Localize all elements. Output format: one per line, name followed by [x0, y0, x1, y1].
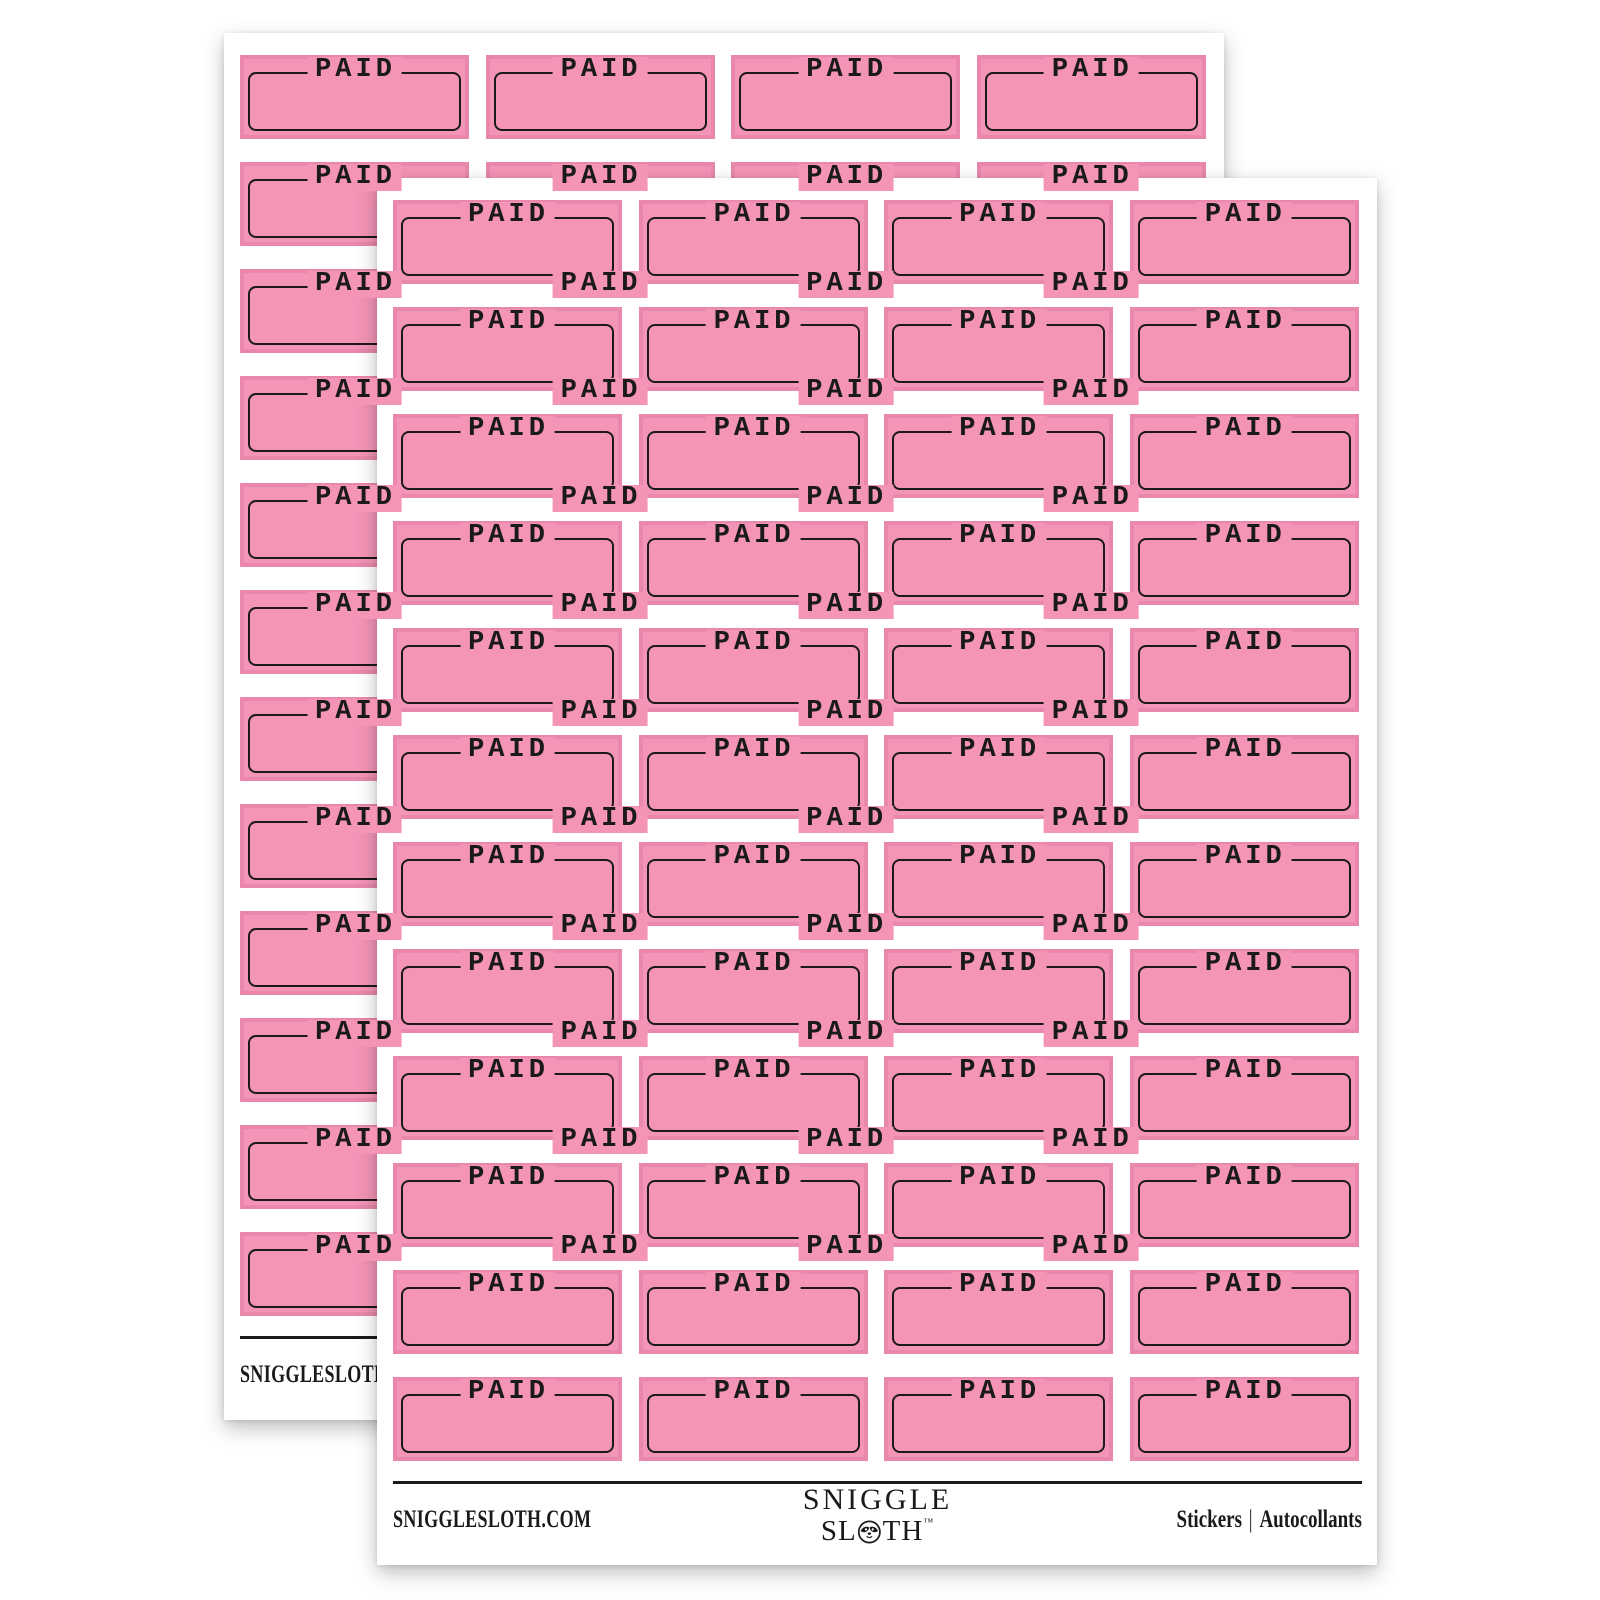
paid-sticker: PAID [1130, 842, 1359, 926]
sticker-label: PAID [553, 378, 648, 405]
sticker-label: PAID [951, 309, 1046, 336]
sticker-label: PAID [798, 1127, 893, 1154]
sticker-label: PAID [1044, 57, 1139, 84]
sticker-label: PAID [307, 806, 402, 833]
sticker-label: PAID [1044, 913, 1139, 940]
paid-sticker: PAID [240, 55, 469, 139]
paid-sticker: PAID [977, 55, 1206, 139]
sticker-label: PAID [460, 1058, 555, 1085]
sticker-label: PAID [1044, 592, 1139, 619]
sticker-label: PAID [553, 1127, 648, 1154]
sticker-label: PAID [553, 806, 648, 833]
sticker-label: PAID [460, 202, 555, 229]
sticker-label: PAID [1044, 271, 1139, 298]
sticker-label: PAID [1044, 164, 1139, 191]
sticker-label: PAID [553, 592, 648, 619]
paid-sticker: PAID [1130, 949, 1359, 1033]
sticker-label: PAID [307, 57, 402, 84]
label-stickers-en: Stickers [1177, 1506, 1242, 1533]
sticker-label: PAID [951, 1272, 1046, 1299]
brand-logo: SNIGGLE SL TH ™ [803, 1484, 952, 1548]
sticker-label: PAID [951, 737, 1046, 764]
sticker-label: PAID [951, 630, 1046, 657]
sticker-label: PAID [307, 485, 402, 512]
brand-name-line2: SL TH ™ [803, 1515, 952, 1548]
sticker-label: PAID [1197, 951, 1292, 978]
sticker-label: PAID [460, 951, 555, 978]
paid-sticker: PAID [1130, 735, 1359, 819]
paid-sticker: PAID [393, 1270, 622, 1354]
label-stickers-fr: Autocollants [1260, 1506, 1362, 1533]
sticker-label: PAID [553, 913, 648, 940]
sticker-label: PAID [706, 523, 801, 550]
paid-sticker: PAID [1130, 200, 1359, 284]
sloth-face-icon [858, 1520, 882, 1544]
sticker-label: PAID [706, 1058, 801, 1085]
paid-sticker: PAID [884, 1377, 1113, 1461]
sticker-label: PAID [1197, 737, 1292, 764]
language-labels: Stickers|Autocollants [1177, 1507, 1362, 1532]
sticker-label: PAID [706, 416, 801, 443]
sticker-label: PAID [1044, 485, 1139, 512]
label-separator: | [1242, 1506, 1259, 1533]
sticker-label: PAID [798, 1234, 893, 1261]
sticker-label: PAID [706, 1379, 801, 1406]
sticker-label: PAID [460, 416, 555, 443]
paid-sticker: PAID [1130, 307, 1359, 391]
sticker-label: PAID [307, 164, 402, 191]
sticker-label: PAID [706, 1272, 801, 1299]
product-photo: PAIDPAIDPAIDPAIDPAIDPAIDPAIDPAIDPAIDPAID… [0, 0, 1600, 1600]
sticker-label: PAID [951, 523, 1046, 550]
sticker-label: PAID [553, 271, 648, 298]
sticker-label: PAID [1044, 806, 1139, 833]
paid-sticker: PAID [1130, 628, 1359, 712]
sticker-label: PAID [553, 485, 648, 512]
sticker-label: PAID [951, 1058, 1046, 1085]
sticker-label: PAID [460, 309, 555, 336]
sticker-label: PAID [460, 523, 555, 550]
sticker-label: PAID [460, 737, 555, 764]
sticker-label: PAID [460, 1165, 555, 1192]
sticker-label: PAID [460, 630, 555, 657]
sticker-label: PAID [1044, 378, 1139, 405]
sticker-label: PAID [951, 951, 1046, 978]
sticker-label: PAID [798, 378, 893, 405]
sticker-label: PAID [1197, 202, 1292, 229]
paid-sticker: PAID [1130, 1163, 1359, 1247]
sticker-label: PAID [706, 951, 801, 978]
website-url: SNIGGLESLOTH.COM [393, 1507, 591, 1532]
sticker-label: PAID [1197, 1379, 1292, 1406]
sticker-label: PAID [1197, 309, 1292, 336]
sticker-label: PAID [553, 57, 648, 84]
sticker-label: PAID [1197, 1165, 1292, 1192]
paid-sticker: PAID [393, 1377, 622, 1461]
sticker-label: PAID [706, 202, 801, 229]
sticker-label: PAID [706, 630, 801, 657]
sticker-label: PAID [307, 1127, 402, 1154]
sticker-label: PAID [951, 1379, 1046, 1406]
sticker-label: PAID [951, 844, 1046, 871]
paid-sticker: PAID [639, 1270, 868, 1354]
brand-name-line1: SNIGGLE [803, 1484, 952, 1515]
sticker-label: PAID [553, 699, 648, 726]
sticker-label: PAID [553, 1234, 648, 1261]
sticker-label: PAID [798, 806, 893, 833]
paid-sticker: PAID [1130, 1056, 1359, 1140]
sticker-label: PAID [798, 913, 893, 940]
sticker-label: PAID [1044, 1020, 1139, 1047]
sticker-label: PAID [1197, 630, 1292, 657]
sticker-label: PAID [706, 844, 801, 871]
paid-sticker: PAID [1130, 1270, 1359, 1354]
sheet-footer: SNIGGLESLOTH.COM SNIGGLE SL TH ™ [393, 1481, 1362, 1561]
sticker-label: PAID [1197, 1272, 1292, 1299]
sticker-label: PAID [798, 485, 893, 512]
sticker-label: PAID [460, 844, 555, 871]
sticker-label: PAID [951, 416, 1046, 443]
sticker-label: PAID [1197, 844, 1292, 871]
paid-sticker: PAID [1130, 521, 1359, 605]
paid-sticker: PAID [639, 1377, 868, 1461]
paid-sticker: PAID [1130, 1377, 1359, 1461]
sticker-label: PAID [1044, 1234, 1139, 1261]
sticker-label: PAID [1197, 1058, 1292, 1085]
paid-sticker: PAID [884, 1270, 1113, 1354]
sticker-label: PAID [553, 164, 648, 191]
sticker-label: PAID [460, 1272, 555, 1299]
brand-line2-start: SL [821, 1515, 857, 1548]
sticker-label: PAID [706, 309, 801, 336]
paid-sticker: PAID [731, 55, 960, 139]
brand-line2-end: TH [883, 1515, 924, 1548]
sticker-label: PAID [798, 164, 893, 191]
sticker-label: PAID [307, 1020, 402, 1047]
sticker-label: PAID [951, 1165, 1046, 1192]
sticker-label: PAID [307, 699, 402, 726]
sticker-label: PAID [798, 57, 893, 84]
sticker-label: PAID [307, 271, 402, 298]
sticker-label: PAID [951, 202, 1046, 229]
sticker-label: PAID [553, 1020, 648, 1047]
sticker-label: PAID [1044, 1127, 1139, 1154]
sticker-label: PAID [798, 1020, 893, 1047]
trademark-symbol: ™ [923, 1518, 934, 1528]
sticker-label: PAID [798, 592, 893, 619]
sticker-label: PAID [460, 1379, 555, 1406]
sticker-label: PAID [307, 378, 402, 405]
sticker-label: PAID [1197, 416, 1292, 443]
sticker-label: PAID [798, 271, 893, 298]
sticker-label: PAID [798, 699, 893, 726]
sticker-label: PAID [1197, 523, 1292, 550]
sticker-label: PAID [307, 1234, 402, 1261]
paid-sticker: PAID [1130, 414, 1359, 498]
sticker-label: PAID [1044, 699, 1139, 726]
sticker-label: PAID [706, 737, 801, 764]
sticker-label: PAID [307, 913, 402, 940]
paid-sticker: PAID [486, 55, 715, 139]
sticker-label: PAID [706, 1165, 801, 1192]
sticker-label: PAID [307, 592, 402, 619]
